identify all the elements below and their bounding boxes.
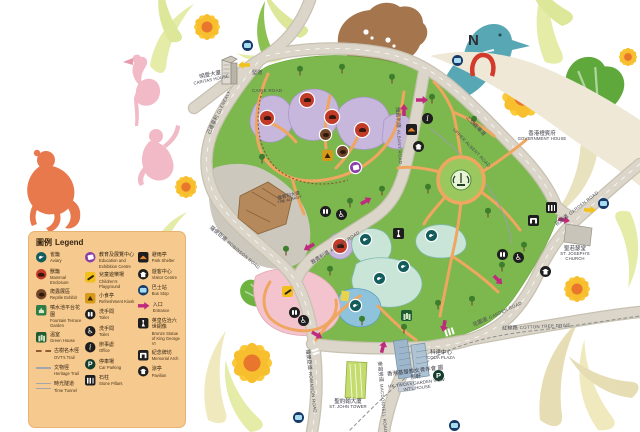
legend-item: 紀念牌坊Memorial Arch [138, 350, 180, 363]
office-icon: i [422, 113, 433, 124]
label-coda-plaza: 科達中心 CODA PLAZA [424, 350, 458, 361]
toilet-icon [497, 249, 508, 260]
pavilion-icon [138, 366, 148, 376]
legend-title: 圖例Legend [36, 237, 180, 248]
entrance-arrow-icon [138, 302, 149, 310]
playground-icon [85, 272, 95, 282]
aviary-icon [398, 261, 409, 272]
king-george-statue-icon [393, 228, 404, 239]
bus-stop-icon [452, 55, 463, 66]
label-cotton-tree-drive: 紅棉路COTTON TREE DRIVE [502, 313, 571, 335]
bus-stop-icon [242, 40, 253, 51]
toilet-icon [85, 309, 95, 319]
visitor-centre-icon [138, 269, 148, 279]
legend-item: 兒童遊樂場Children's Playground [85, 272, 135, 289]
legend-item: 雀籠Aviary [36, 252, 82, 265]
toilet-icon [320, 206, 331, 217]
heritage-trail-line [36, 367, 51, 372]
legend-item: 小食亭Refreshment Kiosk [85, 293, 135, 306]
garden-shed [340, 290, 349, 301]
accessible-toilet-icon: ♿ [336, 209, 347, 220]
bus-stop-icon [293, 412, 304, 423]
decor-monkey-pink [138, 125, 180, 186]
reptile-exhibit-icon [337, 146, 348, 157]
park-shelter-icon [138, 252, 148, 262]
legend-item: 時光隧道Time Tunnel [36, 381, 82, 394]
legend-item: i 辦事處Office [85, 342, 135, 355]
aviary-icon [36, 252, 46, 262]
label-st-josephs-church: 聖若瑟堂 ST. JOSEPH'S CHURCH [556, 246, 594, 262]
mammal-enclosure-icon [300, 93, 314, 107]
accessible-toilet-icon: ♿ [298, 315, 309, 326]
legend-item: 英皇佐治六世銅像Bronze Statue of King George VI [138, 318, 180, 346]
legend-item: ♿ 洗手間Toilet [85, 326, 135, 339]
refreshment-kiosk-icon [322, 150, 333, 161]
legend-item: 遊客中心Visitor Centre [138, 269, 180, 282]
ovt-trail-line [36, 350, 51, 355]
decor-monkey-orange [27, 150, 80, 232]
time-tunnel-line [36, 383, 51, 389]
aviary-icon [374, 273, 385, 284]
legend-column-1: 雀籠Aviary 獸籠Mammal Enclosure 爬蟲展區Reptile … [36, 252, 82, 398]
refreshment-kiosk-icon [85, 293, 95, 303]
aviary-icon [426, 230, 437, 241]
reptile-exhibit-icon [320, 129, 331, 140]
playground-icon [282, 286, 293, 297]
bus-stop-icon [598, 198, 609, 209]
label-st-john-tower: 聖約翰大廈 ST. JOHN TOWER [326, 399, 370, 410]
legend-item: 爬蟲展區Reptile Exhibit [36, 289, 82, 302]
label-government-house: 香港禮賓府 GOVERNMENT HOUSE [512, 131, 572, 142]
legend-item: 避雨亭Park Shelter [138, 252, 180, 265]
greenhouse-icon [401, 310, 412, 321]
memorial-arch-icon [138, 350, 148, 360]
legend-item: 洗手間Toilet [85, 309, 135, 322]
pavilion-icon [540, 266, 551, 277]
legend-item: 石柱Stone Pillars [85, 375, 135, 388]
stone-pillars-icon [85, 375, 95, 385]
legend-item: 古樹名木徑OVT's Trail [36, 348, 82, 361]
office-icon: i [85, 342, 95, 352]
zoo-botanical-gardens-map: 堅道 CAINE ROAD 己連拿利GLENEALY 羅便臣道ROBINSON … [0, 0, 640, 432]
aviary-icon [350, 300, 361, 311]
mammal-enclosure-icon [325, 110, 339, 124]
fountain-terrace [438, 157, 484, 203]
legend-item: 巴士站Bus Stop [138, 285, 180, 298]
accessible-toilet-icon: ♿ [513, 252, 524, 263]
mammal-enclosure-icon [355, 123, 369, 137]
mammal-enclosure-icon [260, 111, 274, 125]
legend-column-3: 避雨亭Park Shelter 遊客中心Visitor Centre 巴士站Bu… [138, 252, 180, 398]
reptile-exhibit-icon [36, 289, 46, 299]
legend-panel: 圖例Legend 雀籠Aviary 獸籠Mammal Enclosure 爬蟲展… [28, 231, 186, 428]
label-albany-road-north: 雅賓利道ALBANY ROAD [391, 107, 412, 165]
legend-item: 獸籠Mammal Enclosure [36, 269, 82, 286]
bus-stop-icon [138, 285, 148, 295]
legend-item: P 停車場Car Parking [85, 359, 135, 372]
education-centre-icon [85, 252, 95, 262]
visitor-centre-icon [413, 141, 424, 152]
st-john-tower-building [345, 362, 367, 399]
fountain-terrace-icon [36, 305, 46, 315]
legend-item: 入口Entrance [138, 302, 180, 315]
king-george-statue-icon [138, 318, 148, 328]
legend-item: 教育及展覽中心Education and Exhibition Centre [85, 252, 135, 269]
label-caine-road: 堅道 CAINE ROAD [252, 61, 282, 97]
bus-stop-icon [449, 420, 460, 431]
legend-item: 溫室Green House [36, 332, 82, 345]
legend-item: 文物徑Heritage Trail [36, 365, 82, 378]
mammal-enclosure-icon [36, 269, 46, 279]
legend-item: 涼亭Pavilion [138, 366, 180, 379]
parking-icon: P [85, 359, 95, 369]
education-centre-icon [350, 162, 361, 173]
legend-column-2: 教育及展覽中心Education and Exhibition Centre 兒… [85, 252, 135, 398]
memorial-arch-icon [528, 215, 539, 226]
greenhouse-icon [36, 332, 46, 342]
accessible-toilet-icon: ♿ [85, 326, 95, 336]
legend-item: 噴水池平台花園Fountain Terrace Garden [36, 305, 82, 328]
st-josephs-building [564, 224, 592, 246]
north-indicator: N [468, 32, 479, 49]
